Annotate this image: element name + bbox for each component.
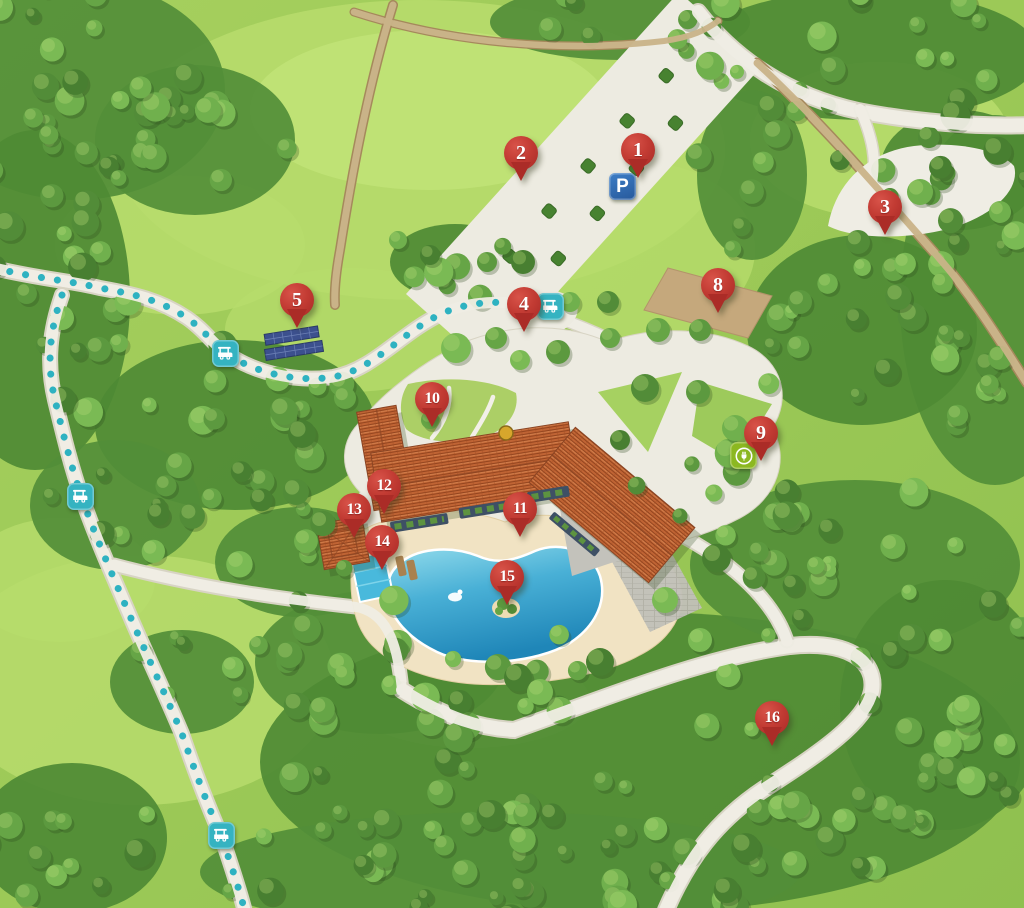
resort-map: 1 2 3 4 5 8 9 10 11 12 13 14 15 16 [0, 0, 1024, 908]
golf-cart-glyph [215, 343, 236, 364]
golf-cart-icon[interactable] [212, 340, 239, 367]
location-pin[interactable]: 1 [621, 133, 655, 167]
location-pin[interactable]: 10 [415, 382, 449, 416]
location-pin[interactable]: 11 [503, 492, 537, 526]
location-pin[interactable]: 13 [337, 493, 371, 527]
fountain [499, 426, 513, 440]
pin-number: 8 [713, 275, 723, 295]
pin-number: 3 [880, 197, 890, 217]
location-pin[interactable]: 3 [868, 190, 902, 224]
location-pin[interactable]: 8 [701, 268, 735, 302]
pin-number: 5 [292, 290, 302, 310]
golf-cart-icon[interactable] [537, 293, 564, 320]
location-pin[interactable]: 2 [504, 136, 538, 170]
pin-number: 4 [519, 294, 529, 314]
pin-number: 2 [516, 143, 526, 163]
location-pin[interactable]: 5 [280, 283, 314, 317]
location-pin[interactable]: 14 [365, 525, 399, 559]
pin-number: 15 [500, 569, 515, 585]
pin-number: 14 [375, 534, 390, 550]
pin-number: 1 [633, 140, 643, 160]
terrain-illustration [0, 0, 1024, 908]
location-pin[interactable]: 15 [490, 560, 524, 594]
location-pin[interactable]: 9 [744, 416, 778, 450]
pin-number: 11 [513, 501, 527, 517]
pin-number: 12 [377, 478, 392, 494]
pin-number: 9 [756, 423, 766, 443]
pin-number: 13 [347, 502, 362, 518]
location-pin[interactable]: 12 [367, 469, 401, 503]
pin-number: 10 [425, 391, 440, 407]
pin-number: 16 [765, 710, 780, 726]
golf-cart-glyph [211, 825, 232, 846]
golf-cart-glyph [540, 296, 561, 317]
golf-cart-icon[interactable] [67, 483, 94, 510]
golf-cart-glyph [70, 486, 91, 507]
location-pin[interactable]: 16 [755, 701, 789, 735]
golf-cart-icon[interactable] [208, 822, 235, 849]
location-pin[interactable]: 4 [507, 287, 541, 321]
parking-letter: P [616, 176, 629, 198]
